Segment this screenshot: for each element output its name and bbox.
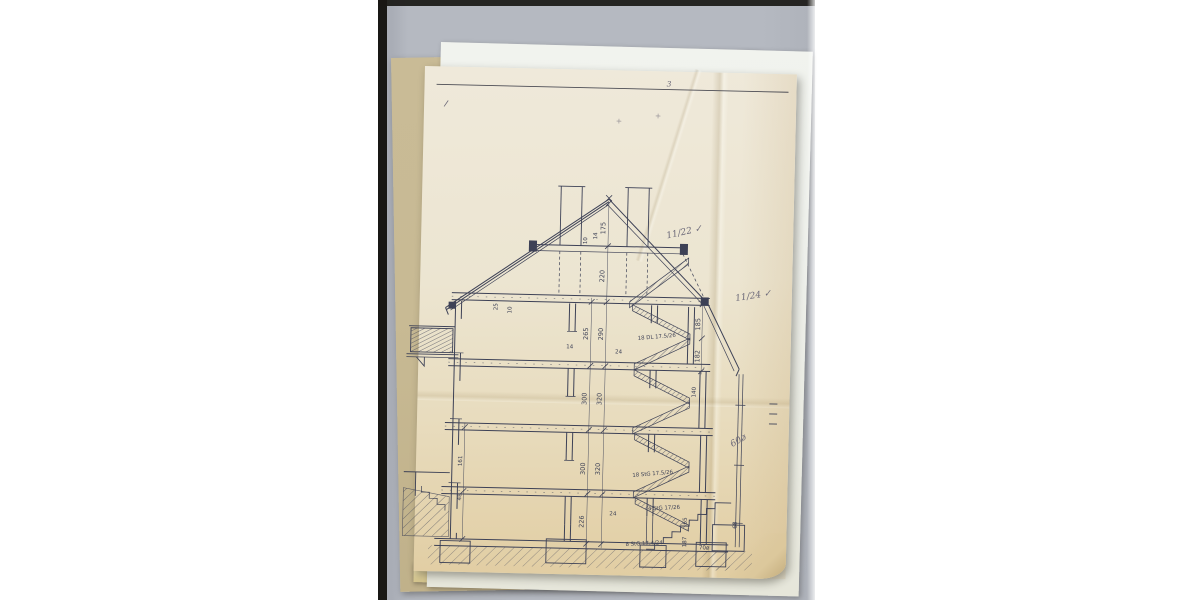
dim-320b: 320 [594, 463, 602, 476]
dim-185: 185 [694, 318, 702, 331]
drawing-sheet: 175 220 290 320 320 265 300 300 226 14 1… [414, 66, 797, 579]
scan-right-fade [807, 0, 821, 600]
pencil-corner-mark: 3 [667, 79, 672, 88]
dim-140: 140 [692, 386, 698, 397]
balcony [406, 326, 459, 367]
dim-187: 187 [682, 536, 688, 547]
pencil-note-roof-upper: 11/22 ✓ [666, 224, 704, 242]
dim-320a: 320 [595, 393, 603, 406]
dim-265: 265 [582, 327, 590, 340]
dim-226: 226 [578, 515, 586, 528]
dim-182: 182 [693, 350, 701, 363]
pencil-plus-b: + [655, 111, 661, 120]
dim-24b: 24 [609, 511, 617, 517]
scanner-photo-area: 175 220 290 320 320 265 300 300 226 14 1… [378, 0, 815, 600]
dim-65: 65 [683, 517, 689, 525]
dim-70: 70ø [699, 545, 710, 551]
dim-300a: 300 [580, 392, 588, 405]
dimension-labels: 175 220 290 320 320 265 300 300 226 14 1… [456, 219, 745, 553]
chimney-left [556, 186, 585, 296]
dim-eave-25: 25 [493, 303, 499, 311]
dim-220: 220 [598, 270, 606, 283]
dim-161: 161 [458, 455, 464, 466]
dim-48: 48 [457, 493, 463, 501]
chimney-right [623, 188, 652, 298]
dim-300b: 300 [579, 462, 587, 475]
dimension-chains [459, 197, 782, 552]
dim-ridge-10: 10 [583, 237, 589, 245]
scanned-page: 175 220 290 320 320 265 300 300 226 14 1… [0, 0, 1200, 600]
dim-ridge-14: 14 [593, 232, 599, 240]
building-section-drawing: 175 220 290 320 320 265 300 300 226 14 1… [399, 66, 797, 587]
pencil-note-ground: 60ø [729, 432, 749, 450]
rain-downpipe [732, 374, 746, 547]
dim-68: 68 [733, 521, 739, 529]
stair-label-attic: 18 DL 17.5/26 [638, 333, 677, 342]
dim-175: 175 [599, 222, 607, 235]
dim-eave-10: 10 [507, 306, 513, 314]
scan-top-edge [378, 0, 815, 6]
sheet-border-line [436, 84, 788, 114]
dim-290: 290 [597, 328, 605, 341]
roof [444, 192, 743, 377]
pencil-plus-a: + [616, 116, 622, 125]
stair-label-basement: 8 StG 17.4/24 [625, 540, 663, 548]
dim-24a: 24 [615, 349, 623, 355]
stair-label-entrance: 4 StG 17/26 [648, 505, 681, 513]
dim-14-wall: 14 [566, 344, 574, 350]
pencil-note-roof-lower: 11/24 ✓ [735, 289, 773, 304]
